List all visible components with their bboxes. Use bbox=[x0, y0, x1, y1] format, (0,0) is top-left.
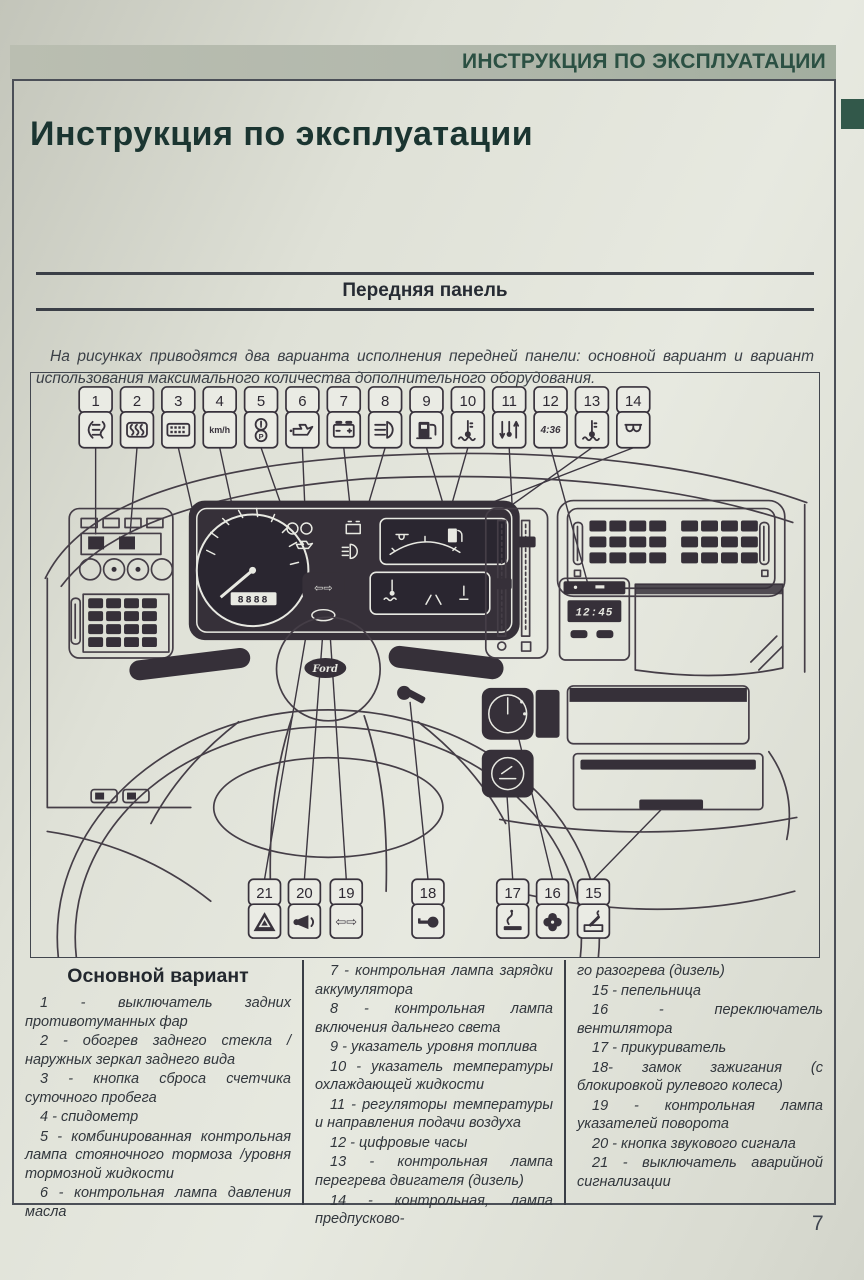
page-number: 7 bbox=[812, 1212, 824, 1236]
fuel-icon bbox=[448, 528, 457, 542]
legend-item: 14 - контрольная, лампа предпусково- bbox=[315, 1192, 553, 1229]
legend-item: 12 - цифровые часы bbox=[315, 1134, 553, 1153]
callout-2: 2 bbox=[121, 387, 154, 448]
turn-indicator-arrows: ⇦⇨ bbox=[314, 581, 332, 594]
storage-shelf bbox=[635, 584, 782, 675]
legend-item: 13 - контрольная лампа перегрева двигате… bbox=[315, 1153, 553, 1190]
brand-name: Ford bbox=[312, 664, 338, 675]
clock-time: 12:45 bbox=[575, 608, 613, 620]
svg-text:16: 16 bbox=[544, 885, 561, 902]
legend-item: 21 - выключатель аварийной сигнализации bbox=[577, 1154, 823, 1191]
legend-item: 20 - кнопка звукового сигнала bbox=[577, 1135, 823, 1154]
air-temperature-controls-icon bbox=[500, 422, 518, 438]
defrost-switch bbox=[119, 536, 135, 549]
rear-fog-switch bbox=[88, 536, 104, 549]
legend-item: 8 - контрольная лампа включения дальнего… bbox=[315, 1000, 553, 1037]
section-title: Передняя панель bbox=[36, 280, 814, 302]
legend-item: 17 - прикуриватель bbox=[577, 1039, 823, 1058]
legend-item: го разогрева (дизель) bbox=[577, 962, 823, 981]
chapter-banner: ИНСТРУКЦИЯ ПО ЭКСПЛУАТАЦИИ bbox=[10, 45, 836, 79]
legend-column-2: 7 - контрольная лампа зарядки аккумулято… bbox=[302, 960, 564, 1205]
callout-15: 15 bbox=[577, 879, 609, 938]
page-title: Инструкция по эксплуатации bbox=[30, 115, 730, 154]
clock-button bbox=[596, 630, 613, 638]
svg-text:15: 15 bbox=[585, 885, 602, 902]
legend-items-1: 1 - выключатель задних противотуманных ф… bbox=[25, 994, 291, 1222]
center-console bbox=[482, 686, 790, 839]
callout-16: 16 bbox=[537, 879, 569, 938]
svg-text:10: 10 bbox=[460, 393, 477, 410]
callout-4: 4 km/h bbox=[203, 387, 236, 448]
callout-5: 5 P bbox=[245, 387, 278, 448]
svg-text:3: 3 bbox=[174, 393, 182, 410]
digital-clock-icon: 4:36 bbox=[540, 425, 561, 436]
legend-item: 6 - контрольная лампа давления масла bbox=[25, 1184, 291, 1221]
temp-slider-knob bbox=[492, 578, 512, 589]
callout-21: 21 bbox=[249, 879, 281, 938]
svg-text:5: 5 bbox=[257, 393, 265, 410]
svg-text:7: 7 bbox=[340, 393, 348, 410]
svg-text:13: 13 bbox=[584, 393, 601, 410]
callout-9: 9 bbox=[410, 387, 443, 448]
legend-item: 2 - обогрев заднего стекла / наружных зе… bbox=[25, 1032, 291, 1069]
legend-item: 5 - комбинированная контрольная лампа ст… bbox=[25, 1128, 291, 1184]
callout-19: 19 ⇦⇨ bbox=[330, 879, 362, 938]
callout-17: 17 bbox=[497, 879, 529, 938]
callout-13: 13 bbox=[575, 387, 608, 448]
svg-text:9: 9 bbox=[422, 393, 430, 410]
svg-text:19: 19 bbox=[338, 885, 355, 902]
svg-text:2: 2 bbox=[133, 393, 141, 410]
legend: Основной вариант 1 - выключатель задних … bbox=[14, 960, 834, 1205]
legend-item: 3 - кнопка сброса счетчика суточного про… bbox=[25, 1070, 291, 1107]
svg-text:20: 20 bbox=[296, 885, 313, 902]
callout-12: 12 4:36 bbox=[534, 387, 567, 448]
callout-10: 10 bbox=[451, 387, 484, 448]
legend-items-2: 7 - контрольная лампа зарядки аккумулято… bbox=[315, 962, 553, 1229]
callout-18: 18 bbox=[412, 879, 444, 938]
clock-module: 12:45 bbox=[560, 578, 630, 660]
callout-8: 8 bbox=[369, 387, 402, 448]
svg-text:6: 6 bbox=[298, 393, 306, 410]
top-callout-boxes: 1 2 3 4 km/h 5 bbox=[79, 387, 650, 448]
legend-column-3: го разогрева (дизель)15 - пепельница16 -… bbox=[564, 960, 834, 1205]
svg-text:17: 17 bbox=[504, 885, 521, 902]
svg-text:1: 1 bbox=[91, 393, 99, 410]
callout-1: 1 bbox=[79, 387, 112, 448]
chapter-banner-text: ИНСТРУКЦИЯ ПО ЭКСПЛУАТАЦИИ bbox=[462, 50, 826, 74]
callout-3: 3 bbox=[162, 387, 195, 448]
svg-text:12: 12 bbox=[542, 393, 559, 410]
callout-11: 11 bbox=[493, 387, 526, 448]
legend-item: 7 - контрольная лампа зарядки аккумулято… bbox=[315, 962, 553, 999]
svg-text:11: 11 bbox=[501, 393, 517, 410]
ignition-key bbox=[397, 686, 411, 700]
legend-item: 16 - переключатель вентилятора bbox=[577, 1001, 823, 1038]
section-header: Передняя панель bbox=[36, 272, 814, 311]
dashboard-diagram: 8888 ⇦⇨ bbox=[30, 372, 820, 958]
svg-text:P: P bbox=[259, 432, 264, 441]
speedometer-icon: km/h bbox=[209, 425, 230, 435]
right-stalk bbox=[387, 645, 504, 681]
clock-button bbox=[571, 630, 588, 638]
svg-text:21: 21 bbox=[256, 885, 273, 902]
svg-text:8: 8 bbox=[381, 393, 389, 410]
callout-7: 7 bbox=[327, 387, 360, 448]
odometer-value: 8888 bbox=[238, 595, 270, 606]
ashtray-handle bbox=[639, 800, 703, 810]
instrument-cluster: 8888 bbox=[189, 501, 520, 641]
legend-item: 10 - указатель температуры охлаждающей ж… bbox=[315, 1058, 553, 1095]
bottom-callout-boxes: 21 20 19 ⇦⇨ 18 17 bbox=[249, 879, 610, 938]
svg-text:14: 14 bbox=[625, 393, 642, 410]
callout-14: 14 bbox=[617, 387, 650, 448]
legend-item: 15 - пепельница bbox=[577, 982, 823, 1001]
legend-item: 1 - выключатель задних противотуманных ф… bbox=[25, 994, 291, 1031]
legend-item: 18- замок зажигания (с блокировкой рулев… bbox=[577, 1059, 823, 1096]
air-slider-knob bbox=[516, 536, 536, 547]
callout-6: 6 bbox=[286, 387, 319, 448]
legend-column-1: Основной вариант 1 - выключатель задних … bbox=[14, 960, 302, 1205]
callout-20: 20 bbox=[288, 879, 320, 938]
lighter-panel bbox=[482, 750, 534, 798]
legend-items-3: го разогрева (дизель)15 - пепельница16 -… bbox=[577, 962, 823, 1192]
fuel-gauge bbox=[380, 519, 508, 565]
svg-text:4: 4 bbox=[216, 393, 224, 410]
turn-signals-icon: ⇦⇨ bbox=[335, 915, 357, 930]
legend-heading: Основной вариант bbox=[25, 964, 291, 989]
temperature-gauge bbox=[370, 572, 490, 614]
legend-item: 4 - спидометр bbox=[25, 1108, 291, 1127]
chapter-edge-tab bbox=[841, 99, 864, 129]
svg-text:18: 18 bbox=[420, 885, 437, 902]
legend-item: 11 - регуляторы температуры и направлени… bbox=[315, 1096, 553, 1133]
legend-item: 19 - контрольная лампа указателей поворо… bbox=[577, 1097, 823, 1134]
radio-slot bbox=[536, 690, 560, 738]
legend-item: 9 - указатель уровня топлива bbox=[315, 1038, 553, 1057]
